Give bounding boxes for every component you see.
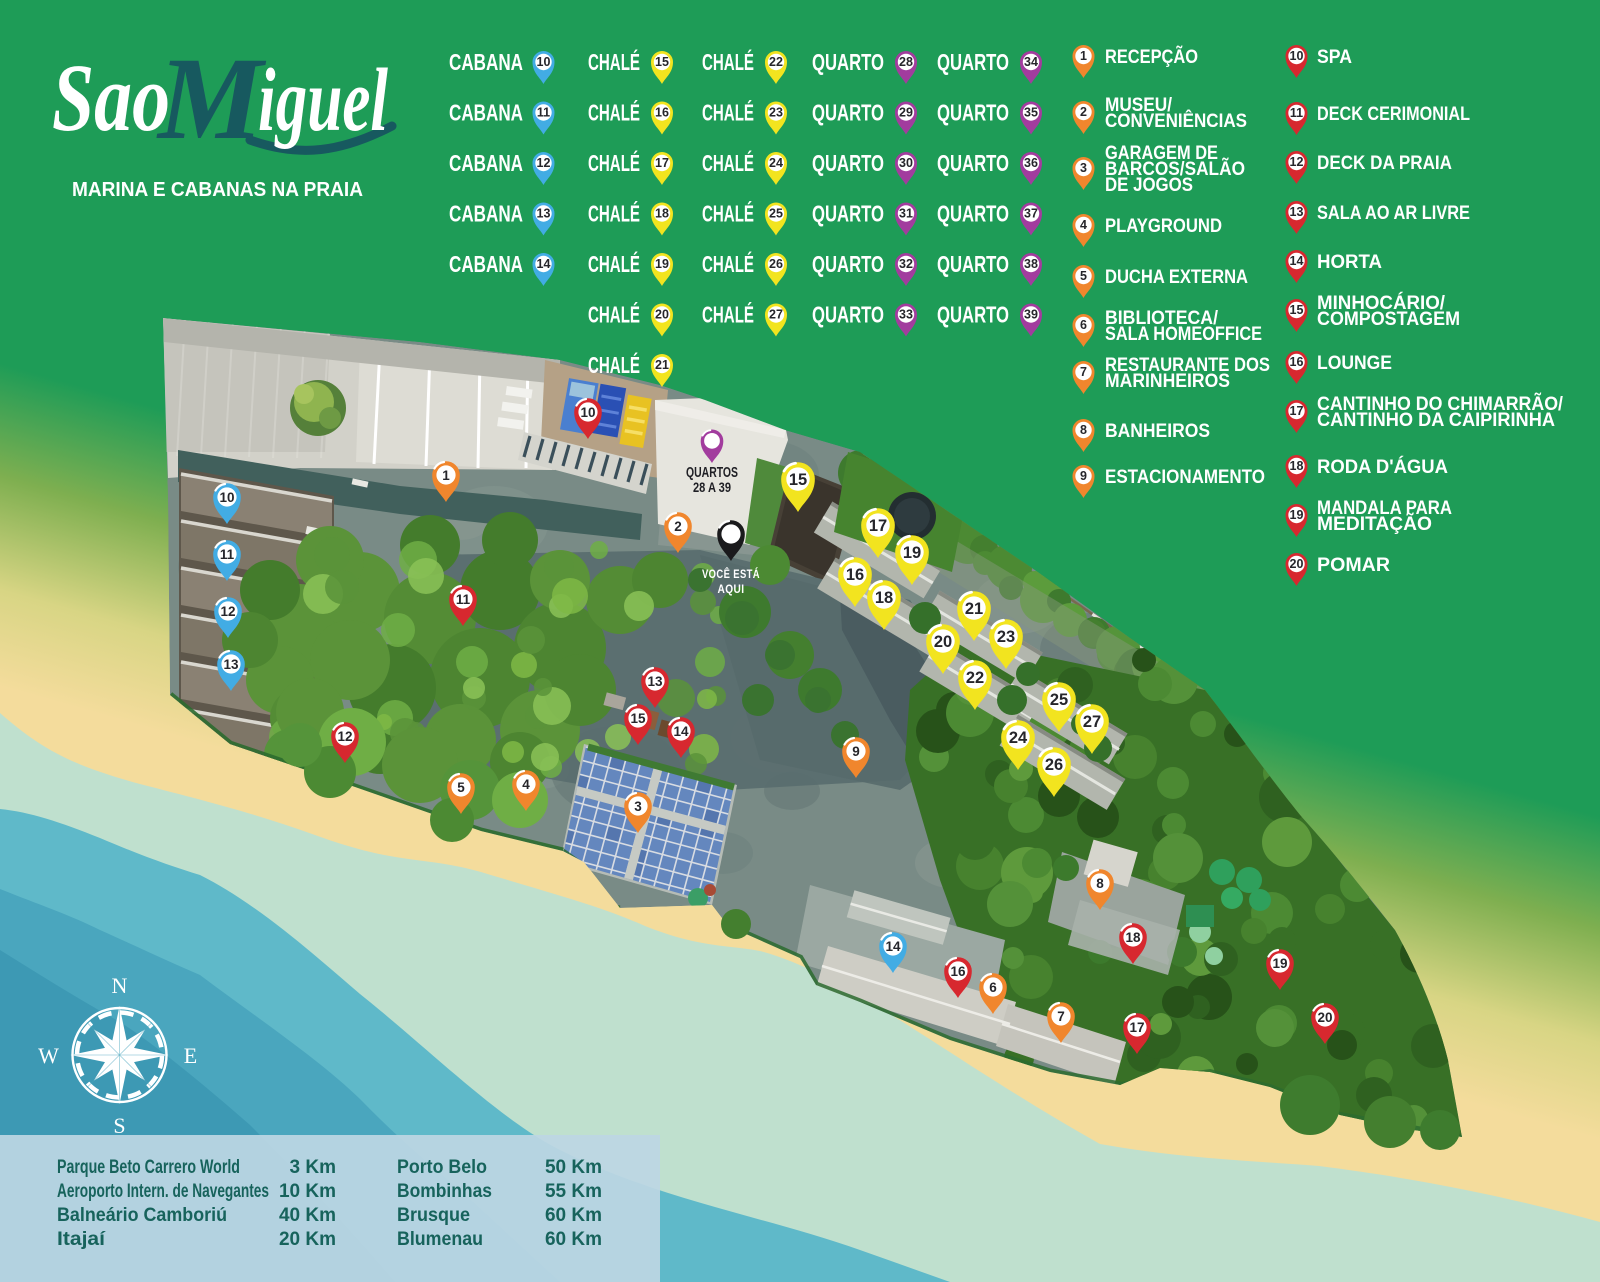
svg-text:15: 15 <box>655 55 669 69</box>
svg-text:RODA D'ÁGUA: RODA D'ÁGUA <box>1317 456 1448 478</box>
svg-text:17: 17 <box>1290 404 1304 418</box>
svg-text:10: 10 <box>219 490 234 505</box>
svg-text:QUARTO: QUARTO <box>937 251 1009 277</box>
svg-text:55 Km: 55 Km <box>545 1181 602 1202</box>
svg-text:CHALÉ: CHALÉ <box>702 149 754 176</box>
svg-text:CHALÉ: CHALÉ <box>588 200 640 227</box>
svg-text:SPA: SPA <box>1317 47 1352 68</box>
svg-text:20: 20 <box>1317 1010 1332 1025</box>
svg-text:18: 18 <box>1125 930 1141 945</box>
svg-text:35: 35 <box>1024 106 1038 120</box>
svg-text:CHALÉ: CHALÉ <box>588 48 640 75</box>
svg-text:QUARTOS: QUARTOS <box>686 465 738 481</box>
svg-text:DECK CERIMONIAL: DECK CERIMONIAL <box>1317 104 1470 125</box>
svg-text:CHALÉ: CHALÉ <box>702 301 754 328</box>
svg-text:23: 23 <box>769 106 783 120</box>
svg-text:HORTA: HORTA <box>1317 252 1382 273</box>
svg-text:M: M <box>156 33 267 164</box>
svg-text:2: 2 <box>674 519 682 534</box>
svg-text:CONVENIÊNCIAS: CONVENIÊNCIAS <box>1105 110 1247 132</box>
svg-text:CHALÉ: CHALÉ <box>588 250 640 277</box>
svg-text:CHALÉ: CHALÉ <box>702 48 754 75</box>
svg-text:CABANA: CABANA <box>449 49 523 75</box>
svg-text:16: 16 <box>1290 355 1304 369</box>
svg-text:12: 12 <box>337 729 352 744</box>
svg-text:20: 20 <box>655 308 669 322</box>
svg-text:14: 14 <box>885 939 901 954</box>
svg-text:QUARTO: QUARTO <box>812 150 884 176</box>
svg-text:QUARTO: QUARTO <box>812 251 884 277</box>
svg-text:15: 15 <box>630 711 646 726</box>
svg-text:20: 20 <box>934 633 952 651</box>
svg-text:BANHEIROS: BANHEIROS <box>1105 421 1210 442</box>
svg-text:15: 15 <box>789 471 807 489</box>
svg-text:13: 13 <box>537 207 551 221</box>
svg-text:CHALÉ: CHALÉ <box>588 301 640 328</box>
svg-text:S: S <box>113 1113 125 1138</box>
svg-text:19: 19 <box>1272 956 1287 971</box>
svg-text:3: 3 <box>634 799 642 814</box>
svg-text:40 Km: 40 Km <box>279 1205 336 1226</box>
svg-text:CABANA: CABANA <box>449 201 523 227</box>
svg-text:16: 16 <box>950 964 966 979</box>
svg-text:12: 12 <box>1290 155 1304 169</box>
svg-text:13: 13 <box>223 657 239 672</box>
svg-text:50 Km: 50 Km <box>545 1157 602 1178</box>
svg-text:CHALÉ: CHALÉ <box>702 200 754 227</box>
svg-text:33: 33 <box>899 308 913 322</box>
svg-text:DECK DA PRAIA: DECK DA PRAIA <box>1317 153 1452 174</box>
svg-text:QUARTO: QUARTO <box>937 201 1009 227</box>
svg-text:MARINHEIROS: MARINHEIROS <box>1105 371 1230 392</box>
svg-text:26: 26 <box>769 257 783 271</box>
svg-text:19: 19 <box>903 544 921 562</box>
svg-text:POMAR: POMAR <box>1317 555 1390 576</box>
svg-text:ESTACIONAMENTO: ESTACIONAMENTO <box>1105 467 1265 488</box>
svg-text:iguel: iguel <box>258 51 388 150</box>
svg-text:24: 24 <box>769 156 783 170</box>
svg-text:9: 9 <box>852 744 860 759</box>
svg-text:CHALÉ: CHALÉ <box>702 250 754 277</box>
svg-text:39: 39 <box>1024 308 1038 322</box>
svg-text:37: 37 <box>1024 207 1038 221</box>
svg-text:3 Km: 3 Km <box>290 1157 336 1178</box>
svg-text:Balneário Camboriú: Balneário Camboriú <box>57 1205 227 1226</box>
svg-text:10: 10 <box>1290 49 1304 63</box>
svg-text:19: 19 <box>1290 508 1304 522</box>
svg-text:7: 7 <box>1080 365 1087 379</box>
svg-text:QUARTO: QUARTO <box>937 100 1009 126</box>
svg-text:27: 27 <box>769 308 783 322</box>
svg-text:17: 17 <box>869 517 887 535</box>
svg-text:6: 6 <box>1080 318 1087 332</box>
svg-text:MARINA E CABANAS NA PRAIA: MARINA E CABANAS NA PRAIA <box>72 179 363 201</box>
svg-text:4: 4 <box>522 777 530 792</box>
svg-text:CHALÉ: CHALÉ <box>588 149 640 176</box>
svg-text:10 Km: 10 Km <box>279 1181 336 1202</box>
svg-text:17: 17 <box>655 156 669 170</box>
svg-text:Blumenau: Blumenau <box>397 1229 483 1250</box>
svg-text:CHALÉ: CHALÉ <box>588 351 640 378</box>
svg-text:11: 11 <box>220 547 235 562</box>
svg-text:5: 5 <box>1080 269 1087 283</box>
svg-text:QUARTO: QUARTO <box>937 302 1009 328</box>
svg-text:14: 14 <box>537 257 551 271</box>
svg-text:27: 27 <box>1083 713 1101 731</box>
svg-text:RECEPÇÃO: RECEPÇÃO <box>1105 46 1198 68</box>
svg-text:E: E <box>184 1043 197 1068</box>
svg-text:Brusque: Brusque <box>397 1205 470 1226</box>
svg-text:4: 4 <box>1080 218 1087 232</box>
svg-text:QUARTO: QUARTO <box>937 49 1009 75</box>
svg-text:3: 3 <box>1080 161 1087 175</box>
svg-text:CANTINHO DA CAIPIRINHA: CANTINHO DA CAIPIRINHA <box>1317 410 1555 431</box>
svg-text:30: 30 <box>899 156 913 170</box>
svg-text:25: 25 <box>1050 691 1068 709</box>
svg-text:13: 13 <box>647 674 663 689</box>
svg-text:Bombinhas: Bombinhas <box>397 1181 492 1202</box>
svg-text:PLAYGROUND: PLAYGROUND <box>1105 216 1222 237</box>
svg-text:18: 18 <box>655 207 669 221</box>
svg-text:16: 16 <box>655 106 669 120</box>
svg-text:6: 6 <box>989 980 997 995</box>
svg-text:11: 11 <box>537 106 550 120</box>
svg-text:QUARTO: QUARTO <box>812 302 884 328</box>
svg-text:21: 21 <box>655 358 669 372</box>
svg-text:22: 22 <box>769 55 783 69</box>
svg-text:Aeroporto Intern. de Navegante: Aeroporto Intern. de Navegantes <box>57 1181 269 1202</box>
svg-text:LOUNGE: LOUNGE <box>1317 353 1392 374</box>
svg-text:CHALÉ: CHALÉ <box>588 99 640 126</box>
svg-text:60 Km: 60 Km <box>545 1229 602 1250</box>
svg-text:38: 38 <box>1024 257 1038 271</box>
svg-text:DE JOGOS: DE JOGOS <box>1105 175 1193 196</box>
svg-text:QUARTO: QUARTO <box>812 201 884 227</box>
svg-text:CABANA: CABANA <box>449 251 523 277</box>
svg-text:20: 20 <box>1290 557 1304 571</box>
svg-text:29: 29 <box>899 106 913 120</box>
svg-text:60 Km: 60 Km <box>545 1205 602 1226</box>
svg-text:MEDITAÇÃO: MEDITAÇÃO <box>1317 513 1432 535</box>
svg-text:Porto Belo: Porto Belo <box>397 1157 487 1178</box>
svg-text:18: 18 <box>1290 459 1304 473</box>
svg-text:QUARTO: QUARTO <box>812 49 884 75</box>
svg-text:25: 25 <box>769 207 783 221</box>
svg-text:18: 18 <box>875 589 893 607</box>
svg-text:28 A 39: 28 A 39 <box>693 480 731 495</box>
svg-text:VOCÊ ESTÁ: VOCÊ ESTÁ <box>702 566 760 581</box>
svg-text:2: 2 <box>1080 105 1087 119</box>
svg-text:13: 13 <box>1290 205 1304 219</box>
svg-text:32: 32 <box>899 257 913 271</box>
svg-text:Parque Beto Carrero World: Parque Beto Carrero World <box>57 1157 240 1178</box>
svg-text:11: 11 <box>1290 106 1303 120</box>
svg-text:10: 10 <box>537 55 551 69</box>
svg-text:12: 12 <box>537 156 551 170</box>
svg-text:14: 14 <box>1290 254 1304 268</box>
svg-text:17: 17 <box>1129 1020 1144 1035</box>
svg-text:N: N <box>112 973 128 998</box>
svg-text:36: 36 <box>1024 156 1038 170</box>
svg-text:15: 15 <box>1290 303 1304 317</box>
svg-text:8: 8 <box>1080 423 1087 437</box>
svg-text:SALA AO AR LIVRE: SALA AO AR LIVRE <box>1317 203 1470 224</box>
svg-text:12: 12 <box>220 604 235 619</box>
svg-text:24: 24 <box>1009 729 1028 747</box>
svg-text:20 Km: 20 Km <box>279 1229 336 1250</box>
svg-text:22: 22 <box>966 669 984 687</box>
svg-text:COMPOSTAGEM: COMPOSTAGEM <box>1317 309 1460 330</box>
svg-text:10: 10 <box>580 405 595 420</box>
svg-text:14: 14 <box>673 724 689 739</box>
svg-text:28: 28 <box>899 55 913 69</box>
svg-text:CHALÉ: CHALÉ <box>702 99 754 126</box>
svg-text:SALA HOMEOFFICE: SALA HOMEOFFICE <box>1105 324 1262 345</box>
svg-text:34: 34 <box>1024 55 1038 69</box>
svg-text:1: 1 <box>1080 49 1087 63</box>
svg-text:16: 16 <box>846 566 864 584</box>
svg-text:19: 19 <box>655 257 669 271</box>
svg-text:QUARTO: QUARTO <box>937 150 1009 176</box>
svg-text:1: 1 <box>442 468 450 483</box>
svg-text:7: 7 <box>1057 1009 1065 1024</box>
svg-text:11: 11 <box>456 592 471 607</box>
svg-text:Sao: Sao <box>52 44 170 151</box>
svg-text:CABANA: CABANA <box>449 150 523 176</box>
svg-text:9: 9 <box>1080 469 1087 483</box>
svg-text:CABANA: CABANA <box>449 100 523 126</box>
svg-text:DUCHA EXTERNA: DUCHA EXTERNA <box>1105 267 1248 288</box>
svg-text:8: 8 <box>1096 876 1104 891</box>
svg-text:23: 23 <box>997 628 1015 646</box>
svg-text:26: 26 <box>1045 756 1063 774</box>
svg-text:W: W <box>38 1043 59 1068</box>
svg-text:Itajaí: Itajaí <box>57 1229 106 1250</box>
svg-text:21: 21 <box>965 600 983 618</box>
svg-text:5: 5 <box>457 780 465 795</box>
svg-text:31: 31 <box>899 207 913 221</box>
svg-text:QUARTO: QUARTO <box>812 100 884 126</box>
svg-text:AQUI: AQUI <box>718 582 745 596</box>
